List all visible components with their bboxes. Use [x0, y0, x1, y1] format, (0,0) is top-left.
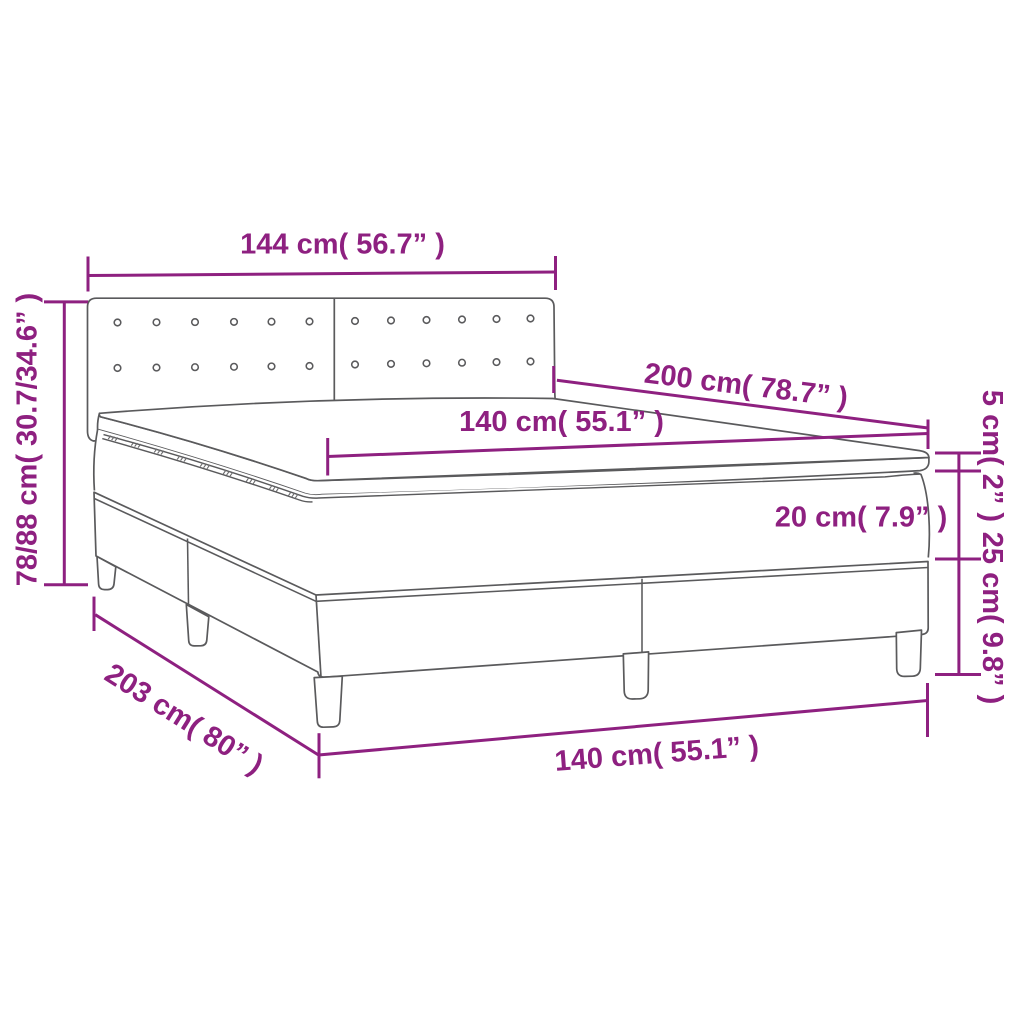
svg-text:140 cm( 55.1” ): 140 cm( 55.1” ) [459, 406, 664, 438]
svg-text:78/88 cm( 30.7/34.6” ): 78/88 cm( 30.7/34.6” ) [12, 293, 44, 586]
svg-text:20 cm( 7.9” ): 20 cm( 7.9” ) [775, 501, 947, 533]
svg-text:5 cm( 2” ): 5 cm( 2” ) [976, 390, 1008, 522]
svg-text:144 cm( 56.7” ): 144 cm( 56.7” ) [240, 229, 445, 261]
svg-text:25 cm( 9.8” ): 25 cm( 9.8” ) [976, 532, 1008, 704]
